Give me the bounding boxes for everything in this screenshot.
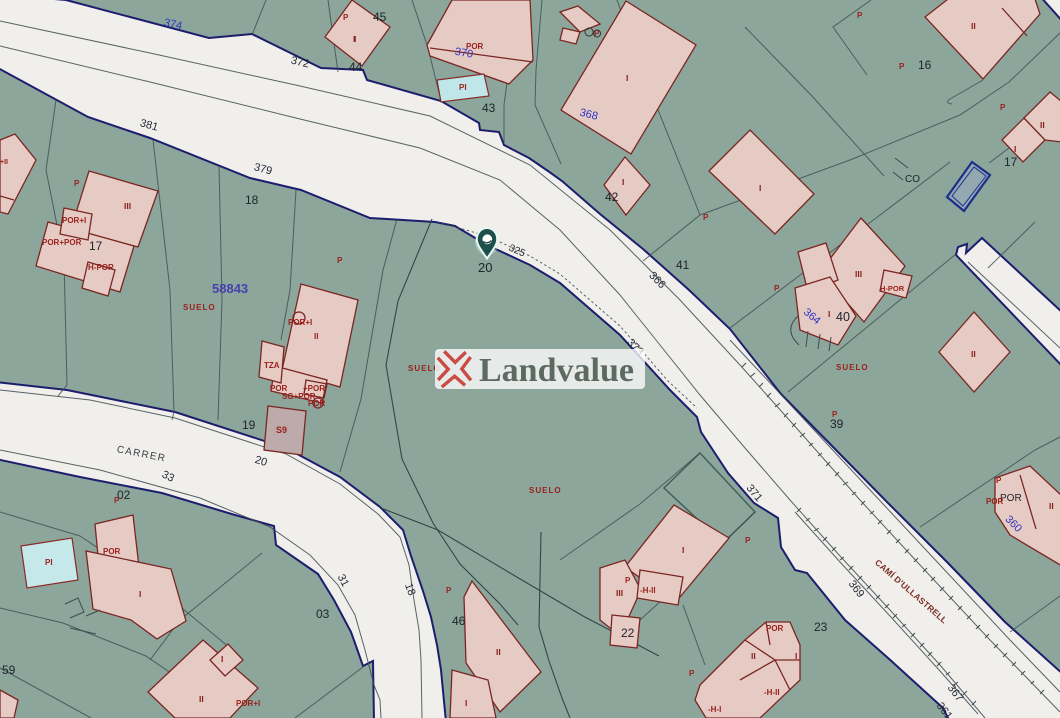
svg-text:POR+I: POR+I bbox=[62, 216, 86, 225]
svg-text:I: I bbox=[139, 589, 141, 599]
svg-text:II: II bbox=[199, 694, 204, 704]
svg-text:P: P bbox=[774, 284, 780, 293]
svg-text:S9: S9 bbox=[276, 425, 287, 435]
svg-text:-H-II: -H-II bbox=[640, 586, 656, 595]
svg-text:17: 17 bbox=[89, 239, 103, 253]
svg-text:I: I bbox=[795, 651, 797, 661]
svg-text:P: P bbox=[594, 29, 600, 38]
svg-text:59: 59 bbox=[2, 663, 16, 677]
svg-text:P: P bbox=[703, 213, 709, 222]
svg-text:POR: POR bbox=[766, 624, 784, 633]
svg-text:II: II bbox=[971, 349, 976, 359]
svg-text:P: P bbox=[446, 586, 452, 595]
svg-text:PI: PI bbox=[45, 558, 53, 567]
svg-text:II: II bbox=[751, 651, 756, 661]
svg-text:II: II bbox=[1040, 120, 1045, 130]
svg-text:P: P bbox=[74, 179, 80, 188]
svg-text:SUELO: SUELO bbox=[836, 363, 869, 372]
svg-text:42: 42 bbox=[605, 190, 619, 204]
svg-text:P: P bbox=[996, 476, 1002, 485]
svg-text:P: P bbox=[337, 256, 343, 265]
svg-text:17: 17 bbox=[1004, 155, 1018, 169]
svg-text:41: 41 bbox=[676, 258, 690, 272]
svg-text:I: I bbox=[626, 73, 628, 83]
svg-text:44: 44 bbox=[349, 60, 363, 74]
svg-text:SUELO: SUELO bbox=[529, 486, 562, 495]
svg-text:II: II bbox=[1049, 501, 1054, 511]
svg-text:PI: PI bbox=[459, 83, 467, 92]
svg-text:P: P bbox=[745, 536, 751, 545]
svg-text:P: P bbox=[832, 410, 838, 419]
svg-text:22: 22 bbox=[621, 626, 635, 640]
svg-text:P: P bbox=[857, 11, 863, 20]
svg-text:P: P bbox=[1000, 103, 1006, 112]
svg-text:POR: POR bbox=[986, 497, 1004, 506]
svg-text:20: 20 bbox=[478, 260, 492, 275]
svg-text:I: I bbox=[354, 34, 356, 44]
svg-text:I: I bbox=[622, 177, 624, 187]
svg-text:POR+I: POR+I bbox=[288, 318, 312, 327]
svg-text:II: II bbox=[971, 21, 976, 31]
svg-text:46: 46 bbox=[452, 614, 466, 628]
svg-text:POR+I: POR+I bbox=[236, 699, 260, 708]
svg-text:TZA: TZA bbox=[264, 361, 280, 370]
svg-text:16: 16 bbox=[918, 58, 932, 72]
svg-text:I: I bbox=[1014, 144, 1016, 154]
svg-text:P: P bbox=[899, 62, 905, 71]
svg-text:43: 43 bbox=[482, 101, 496, 115]
svg-text:III: III bbox=[616, 588, 623, 598]
svg-text:-H-I: -H-I bbox=[708, 705, 721, 714]
svg-text:POR: POR bbox=[308, 399, 326, 408]
svg-text:18: 18 bbox=[245, 193, 259, 207]
svg-text:H-POR: H-POR bbox=[88, 263, 114, 272]
svg-text:+II: +II bbox=[0, 159, 8, 166]
svg-text:I: I bbox=[221, 654, 223, 664]
svg-text:I: I bbox=[759, 183, 761, 193]
svg-text:P: P bbox=[343, 13, 349, 22]
svg-text:H-POR: H-POR bbox=[880, 284, 905, 293]
svg-text:III: III bbox=[855, 269, 862, 279]
svg-text:P: P bbox=[625, 576, 631, 585]
svg-text:P: P bbox=[689, 669, 695, 678]
svg-text:III: III bbox=[124, 201, 131, 211]
svg-text:SUELO: SUELO bbox=[183, 303, 216, 312]
svg-text:I: I bbox=[828, 309, 830, 319]
svg-text:40: 40 bbox=[836, 310, 850, 324]
svg-text:03: 03 bbox=[316, 607, 330, 621]
svg-text:58843: 58843 bbox=[212, 281, 248, 296]
svg-text:23: 23 bbox=[814, 620, 828, 634]
svg-text:45: 45 bbox=[373, 10, 387, 24]
svg-text:P: P bbox=[114, 496, 120, 505]
svg-text:I: I bbox=[682, 545, 684, 555]
svg-text:POR: POR bbox=[466, 42, 484, 51]
svg-text:Landvalue: Landvalue bbox=[479, 352, 634, 389]
svg-text:19: 19 bbox=[242, 418, 256, 432]
svg-text:POR: POR bbox=[103, 547, 121, 556]
svg-text:39: 39 bbox=[830, 417, 844, 431]
svg-text:II: II bbox=[496, 647, 501, 657]
svg-text:POR+POR: POR+POR bbox=[42, 238, 82, 247]
svg-text:II: II bbox=[314, 332, 318, 341]
svg-text:CO: CO bbox=[905, 174, 920, 185]
svg-text:-H-II: -H-II bbox=[764, 688, 780, 697]
svg-text:I: I bbox=[465, 698, 467, 708]
